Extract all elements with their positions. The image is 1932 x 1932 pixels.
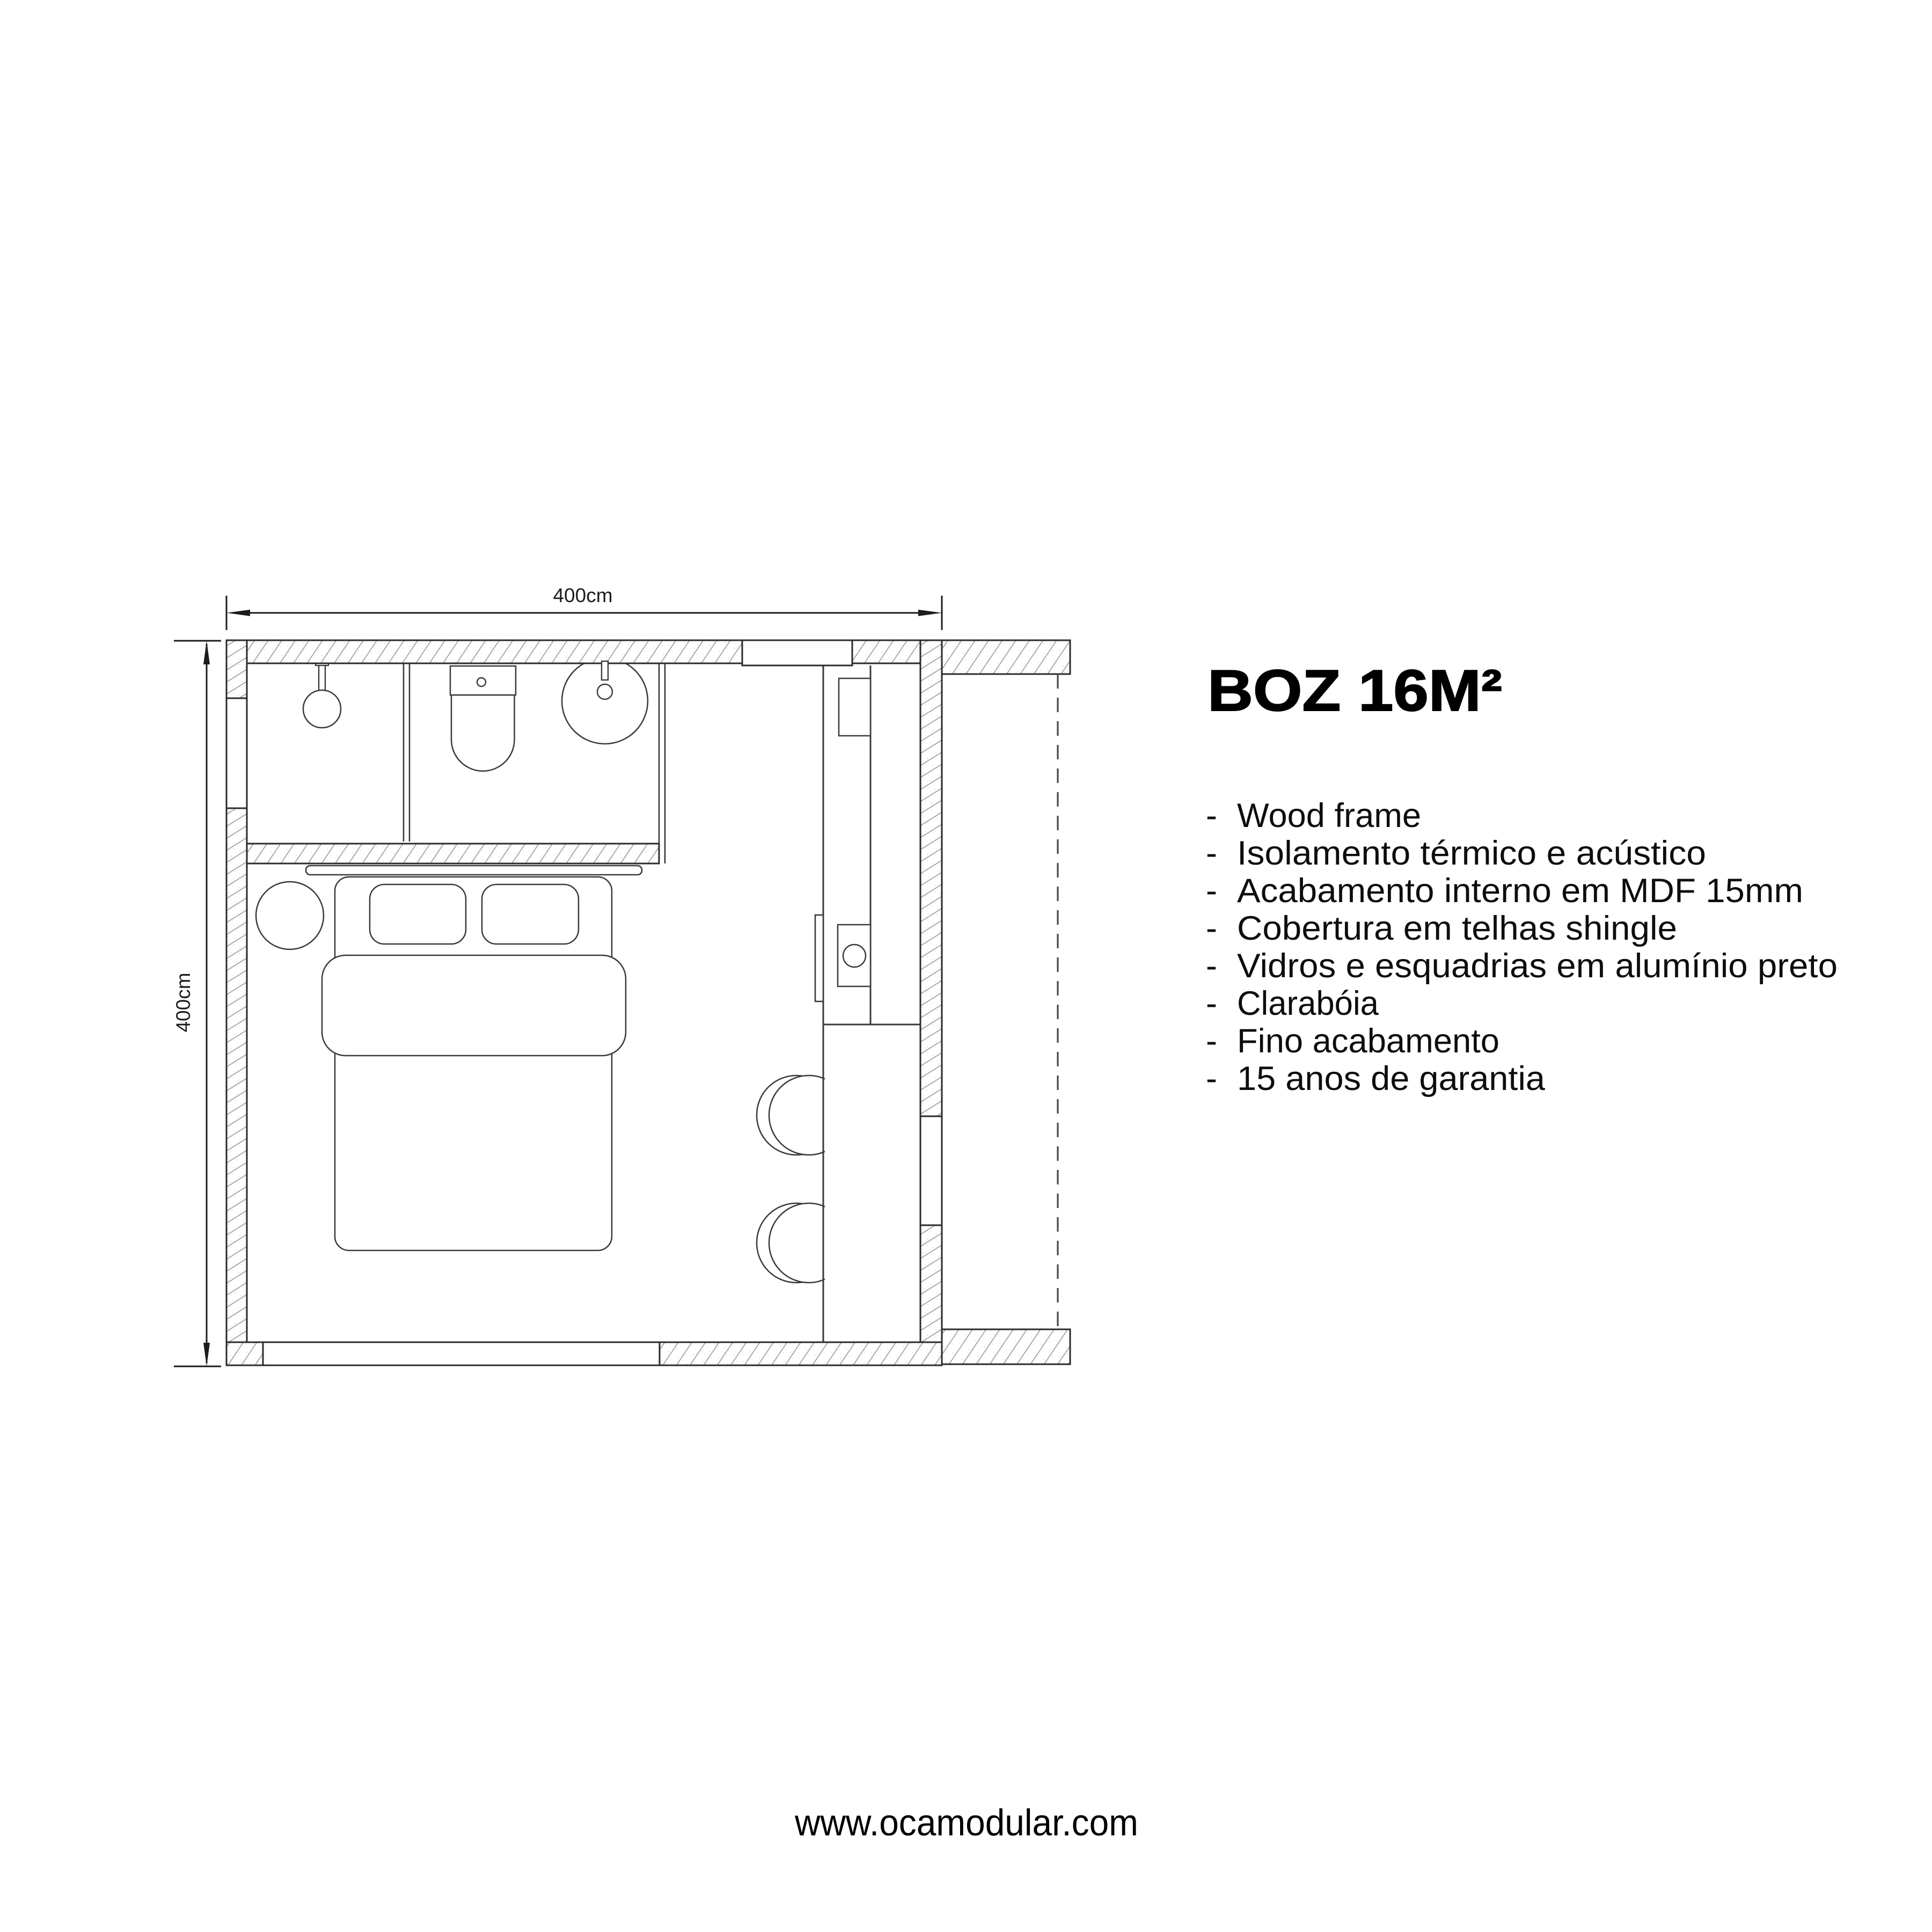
svg-text:400cm: 400cm bbox=[553, 584, 612, 606]
svg-text:Cobertura em telhas shingle: Cobertura em telhas shingle bbox=[1237, 910, 1677, 947]
svg-text:15 anos de garantia: 15 anos de garantia bbox=[1237, 1060, 1546, 1097]
svg-text:-: - bbox=[1206, 1022, 1217, 1060]
svg-text:-: - bbox=[1206, 872, 1217, 910]
svg-text:Wood frame: Wood frame bbox=[1237, 797, 1421, 835]
svg-text:Acabamento interno em MDF 15mm: Acabamento interno em MDF 15mm bbox=[1237, 872, 1803, 910]
svg-text:BOZ 16M²: BOZ 16M² bbox=[1207, 658, 1502, 723]
svg-text:-: - bbox=[1206, 835, 1217, 872]
svg-text:Isolamento térmico e acústico: Isolamento térmico e acústico bbox=[1237, 835, 1706, 872]
svg-text:www.ocamodular.com: www.ocamodular.com bbox=[794, 1802, 1138, 1843]
svg-text:-: - bbox=[1206, 985, 1217, 1022]
svg-text:-: - bbox=[1206, 1060, 1217, 1097]
svg-text:400cm: 400cm bbox=[172, 972, 194, 1032]
svg-text:Clarabóia: Clarabóia bbox=[1237, 985, 1379, 1022]
svg-text:Vidros e esquadrias em alumíni: Vidros e esquadrias em alumínio preto bbox=[1237, 947, 1838, 985]
svg-text:-: - bbox=[1206, 797, 1217, 835]
svg-text:-: - bbox=[1206, 947, 1217, 985]
svg-text:Fino acabamento: Fino acabamento bbox=[1237, 1022, 1499, 1060]
svg-text:-: - bbox=[1206, 910, 1217, 947]
